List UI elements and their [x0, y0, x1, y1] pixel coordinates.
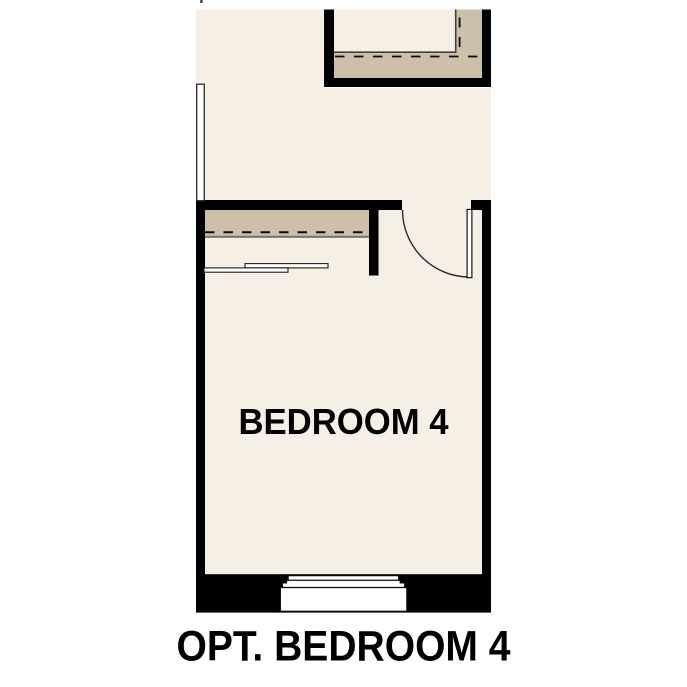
- svg-text:OPT. BEDROOM 4: OPT. BEDROOM 4: [177, 623, 511, 671]
- svg-text:BEDROOM 4: BEDROOM 4: [239, 401, 449, 442]
